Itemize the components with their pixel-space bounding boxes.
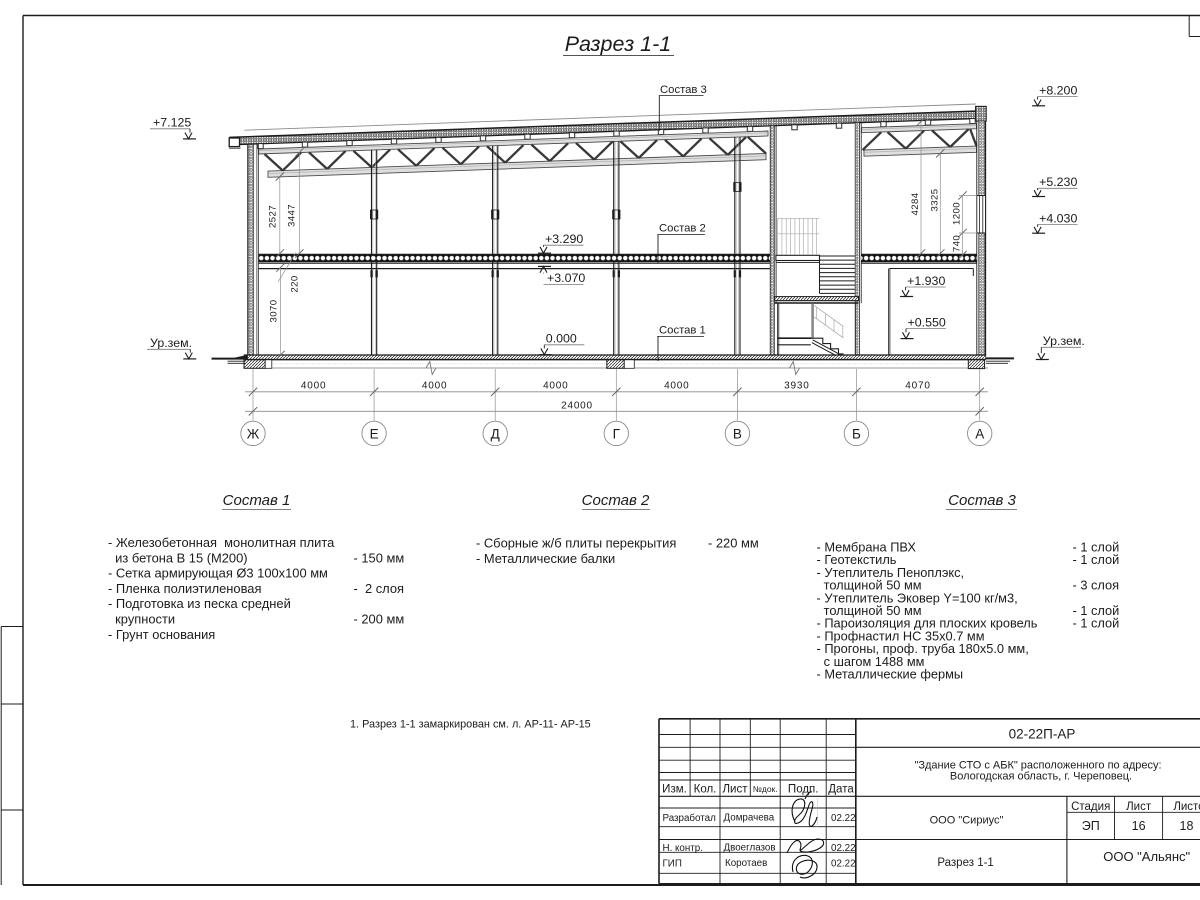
svg-text:Подп.: Подп. xyxy=(788,783,819,795)
svg-text:- 150 мм: - 150 мм xyxy=(354,550,405,565)
svg-text:+0.550: +0.550 xyxy=(908,315,946,329)
svg-text:- Железобетонная монолитная п: - Железобетонная монолитная плита xyxy=(108,535,335,550)
svg-text:Н. контр.: Н. контр. xyxy=(663,843,703,854)
svg-text:0.000: 0.000 xyxy=(546,332,577,346)
svg-text:Коротаев: Коротаев xyxy=(725,858,767,869)
svg-text:Состав 1: Состав 1 xyxy=(223,492,291,509)
svg-text:2527: 2527 xyxy=(268,205,279,228)
svg-text:Состав 2: Состав 2 xyxy=(582,492,650,509)
svg-text:- 220 мм: - 220 мм xyxy=(708,536,759,551)
svg-text:- Подготовка из песка средней: - Подготовка из песка средней xyxy=(108,596,291,611)
svg-text:Разрез 1-1: Разрез 1-1 xyxy=(565,32,672,56)
svg-text:02.22: 02.22 xyxy=(831,843,856,854)
svg-text:Ур.зем.: Ур.зем. xyxy=(1043,334,1085,348)
svg-text:Домрачева: Домрачева xyxy=(724,813,775,824)
svg-text:4000: 4000 xyxy=(664,381,689,392)
svg-text:- Металлические балки: - Металлические балки xyxy=(476,551,615,566)
svg-text:№док.: №док. xyxy=(753,784,778,794)
svg-text:18: 18 xyxy=(1180,819,1194,833)
svg-text:02.22: 02.22 xyxy=(831,859,856,870)
svg-text:02.22: 02.22 xyxy=(831,813,856,824)
svg-text:- Пленка полиэтиленовая: - Пленка полиэтиленовая xyxy=(108,581,261,596)
svg-text:- 1 слой: - 1 слой xyxy=(1073,616,1120,631)
svg-text:А: А xyxy=(975,426,984,441)
svg-text:Дата: Дата xyxy=(828,783,854,795)
svg-text:Б: Б xyxy=(852,426,861,441)
svg-text:4000: 4000 xyxy=(543,381,568,392)
svg-text:+5.230: +5.230 xyxy=(1039,175,1077,189)
svg-text:Стадия: Стадия xyxy=(1071,801,1110,813)
svg-text:Разрез 1-1: Разрез 1-1 xyxy=(937,857,993,869)
svg-text:4070: 4070 xyxy=(905,381,930,392)
svg-text:- 3 слоя: - 3 слоя xyxy=(1073,578,1120,593)
svg-text:Лист: Лист xyxy=(1126,801,1152,813)
svg-text:3447: 3447 xyxy=(287,204,298,227)
svg-text:740: 740 xyxy=(952,235,963,252)
svg-text:крупности: крупности xyxy=(108,612,175,627)
svg-text:+4.030: +4.030 xyxy=(1039,211,1077,225)
svg-text:3325: 3325 xyxy=(929,189,940,212)
svg-text:Состав 3: Состав 3 xyxy=(660,84,707,96)
svg-text:Вологодская область, г. Черепо: Вологодская область, г. Череповец. xyxy=(950,770,1132,782)
svg-text:ООО "Сириус": ООО "Сириус" xyxy=(930,815,1004,827)
svg-text:Разработал: Разработал xyxy=(663,813,717,824)
svg-text:4000: 4000 xyxy=(301,381,326,392)
svg-text:+3.070: +3.070 xyxy=(547,271,585,285)
svg-text:ГИП: ГИП xyxy=(663,859,682,870)
svg-text:3930: 3930 xyxy=(784,381,809,392)
svg-text:16: 16 xyxy=(1132,819,1146,833)
svg-text:+3.290: +3.290 xyxy=(545,232,583,246)
svg-text:- Сетка армирующая Ø3 100х100: - Сетка армирующая Ø3 100х100 мм xyxy=(108,566,328,581)
svg-text:- 1 слой: - 1 слой xyxy=(1073,552,1120,567)
svg-text:+1.930: +1.930 xyxy=(907,274,945,288)
svg-text:ООО "Альянс": ООО "Альянс" xyxy=(1103,849,1190,864)
svg-text:- Металлические фермы: - Металлические фермы xyxy=(817,667,964,682)
svg-text:Ж: Ж xyxy=(247,426,260,441)
svg-text:Двоеглазов: Двоеглазов xyxy=(724,843,776,854)
svg-text:24000: 24000 xyxy=(561,400,593,411)
svg-text:Кол.: Кол. xyxy=(694,783,717,795)
svg-text:Листов: Листов xyxy=(1173,801,1200,813)
svg-text:Лист: Лист xyxy=(723,783,749,795)
svg-text:Изм.: Изм. xyxy=(662,783,687,795)
svg-text:Г: Г xyxy=(613,426,621,441)
svg-text:02-22П-АР: 02-22П-АР xyxy=(1009,727,1076,742)
svg-text:- 200 мм: - 200 мм xyxy=(354,612,405,627)
svg-text:1. Разрез 1-1 замаркирован см.: 1. Разрез 1-1 замаркирован см. л. АР-11-… xyxy=(350,719,591,731)
svg-text:В: В xyxy=(733,426,742,441)
svg-text:Состав 2: Состав 2 xyxy=(659,223,706,235)
svg-text:+8.200: +8.200 xyxy=(1039,83,1077,97)
svg-text:4000: 4000 xyxy=(422,381,447,392)
svg-text:Д: Д xyxy=(491,426,500,441)
svg-text:1200: 1200 xyxy=(952,202,963,225)
svg-text:- Грунт основания: - Грунт основания xyxy=(108,627,215,642)
svg-text:ЭП: ЭП xyxy=(1082,819,1100,833)
svg-text:из бетона В 15 (М200): из бетона В 15 (М200) xyxy=(108,550,248,565)
svg-text:Состав 3: Состав 3 xyxy=(948,492,1016,509)
svg-text:- Сборные ж/б плиты перекрытия: - Сборные ж/б плиты перекрытия xyxy=(476,536,676,551)
svg-text:Состав 1: Состав 1 xyxy=(659,325,706,337)
svg-text:Ур.зем.: Ур.зем. xyxy=(150,336,192,350)
svg-text:3070: 3070 xyxy=(269,300,280,323)
svg-text:220: 220 xyxy=(290,275,301,292)
svg-text:- 2 слоя: - 2 слоя xyxy=(354,581,404,596)
svg-text:+7.125: +7.125 xyxy=(153,116,191,130)
svg-text:Е: Е xyxy=(370,426,379,441)
svg-text:4284: 4284 xyxy=(910,192,921,215)
